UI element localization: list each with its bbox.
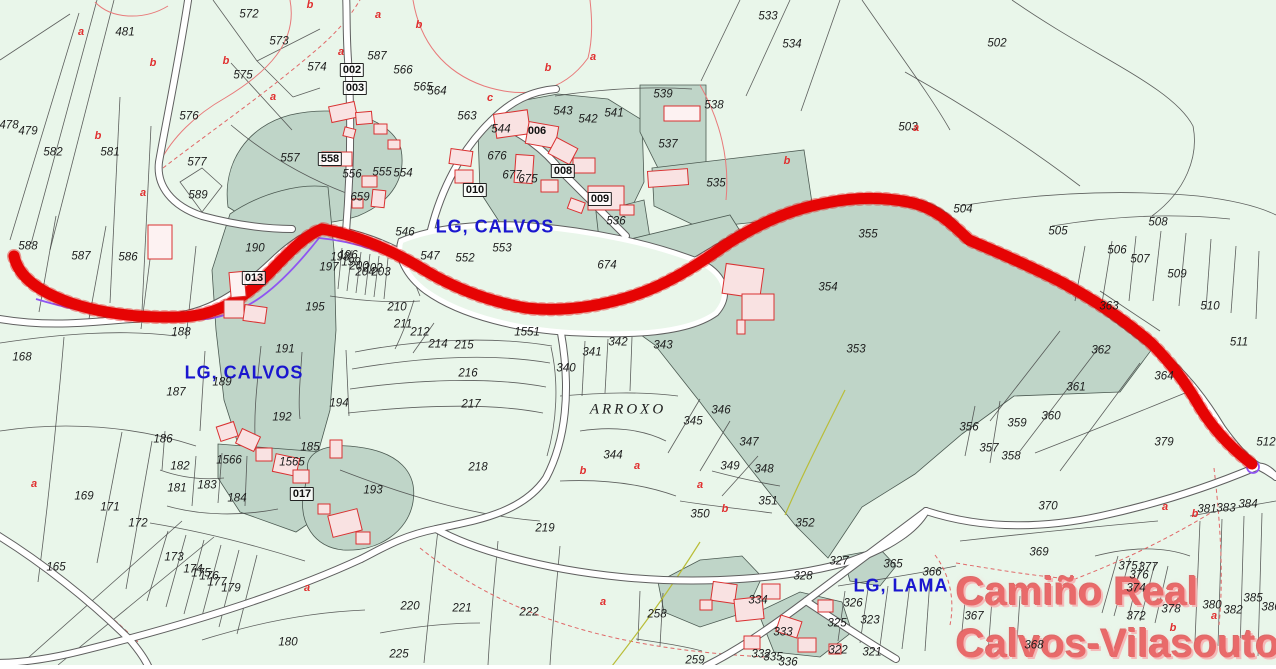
parcel-label: 184 — [227, 493, 246, 505]
map-title-line2: Calvos-Vilasouto — [956, 622, 1276, 667]
parcel-label: 383 — [1216, 503, 1235, 515]
subparcel-letter: c — [487, 92, 493, 104]
parcel-label: 553 — [492, 243, 511, 255]
subparcel-letter: b — [784, 155, 791, 167]
parcel-label: 362 — [1091, 345, 1110, 357]
subparcel-letter: b — [1170, 622, 1177, 634]
parcel-label: 215 — [454, 340, 473, 352]
parcel-label: 544 — [491, 124, 510, 136]
parcel-label: 340 — [556, 363, 575, 375]
parcel-label: 384 — [1238, 499, 1257, 511]
parcel-label: 541 — [604, 108, 623, 120]
parcel-label: 336 — [778, 657, 797, 669]
subparcel-letter: a — [304, 582, 310, 594]
parcel-label: 363 — [1099, 301, 1118, 313]
parcel-label: 180 — [278, 637, 297, 649]
parcel-label: 344 — [603, 450, 622, 462]
parcel-label: 589 — [188, 190, 207, 202]
building-label: 017 — [290, 487, 314, 501]
parcel-label: 574 — [307, 62, 326, 74]
parcel-label: 535 — [706, 178, 725, 190]
parcel-label: 219 — [535, 523, 554, 535]
parcel-label: 478 — [0, 120, 19, 132]
parcel-label: 372 — [1126, 611, 1145, 623]
parcel-label: 356 — [959, 422, 978, 434]
parcel-label: 365 — [883, 559, 902, 571]
parcel-label: 552 — [455, 253, 474, 265]
parcel-label: 504 — [953, 204, 972, 216]
parcel-label: 192 — [272, 412, 291, 424]
parcel-label: 374 — [1126, 583, 1145, 595]
parcel-label: 539 — [653, 89, 672, 101]
parcel-label: 367 — [964, 611, 983, 623]
parcel-label: 512 — [1256, 437, 1275, 449]
subparcel-letter: a — [270, 91, 276, 103]
parcel-label: 214 — [428, 339, 447, 351]
parcel-label: 572 — [239, 9, 258, 21]
place-label-lg-calvos-1: LG, CALVOS — [436, 217, 555, 238]
building-label: 008 — [551, 164, 575, 178]
parcel-label: 505 — [1048, 226, 1067, 238]
parcel-label: 189 — [212, 377, 231, 389]
parcel-label: 536 — [606, 216, 625, 228]
parcel-label: 321 — [862, 647, 881, 659]
parcel-label: 326 — [843, 598, 862, 610]
parcel-label: 343 — [653, 340, 672, 352]
parcel-label: 221 — [452, 603, 471, 615]
parcel-label: 555 — [372, 167, 391, 179]
subparcel-letter: b — [545, 62, 552, 74]
parcel-label: 348 — [754, 464, 773, 476]
parcel-label: 203 — [371, 267, 390, 279]
parcel-label: 323 — [860, 615, 879, 627]
parcel-label: 217 — [461, 399, 480, 411]
parcel-label: 349 — [720, 461, 739, 473]
subparcel-letter: a — [31, 478, 37, 490]
parcel-label: 674 — [597, 260, 616, 272]
parcel-label: 676 — [487, 151, 506, 163]
cadastral-map[interactable]: LG, CALVOS LG, CALVOS LG, LAMA ARROXO Ca… — [0, 0, 1276, 665]
parcel-label: 220 — [400, 601, 419, 613]
parcel-label: 675 — [518, 174, 537, 186]
parcel-label: 381 — [1197, 504, 1216, 516]
parcel-label: 575 — [233, 70, 252, 82]
parcel-label: 345 — [683, 416, 702, 428]
labels-layer: LG, CALVOS LG, CALVOS LG, LAMA ARROXO Ca… — [0, 0, 1276, 665]
parcel-label: 506 — [1107, 245, 1126, 257]
subparcel-letter: a — [600, 596, 606, 608]
subparcel-letter: b — [223, 55, 230, 67]
parcel-label: 587 — [71, 251, 90, 263]
parcel-label: 538 — [704, 100, 723, 112]
parcel-label: 481 — [115, 27, 134, 39]
parcel-label: 546 — [395, 227, 414, 239]
parcel-label: 386 — [1261, 602, 1276, 614]
parcel-label: 573 — [269, 36, 288, 48]
building-label: 558 — [318, 152, 342, 166]
parcel-label: 342 — [608, 337, 627, 349]
parcel-label: 1551 — [514, 327, 540, 339]
subparcel-letter: a — [913, 122, 919, 134]
parcel-label: 510 — [1200, 301, 1219, 313]
parcel-label: 171 — [100, 502, 119, 514]
parcel-label: 547 — [420, 251, 439, 263]
area-label-arroxo: ARROXO — [590, 402, 666, 419]
parcel-label: 225 — [389, 649, 408, 661]
parcel-label: 479 — [18, 126, 37, 138]
parcel-label: 197 — [319, 262, 338, 274]
parcel-label: 586 — [118, 252, 137, 264]
subparcel-letter: b — [1192, 508, 1199, 520]
parcel-label: 258 — [647, 609, 666, 621]
parcel-label: 385 — [1243, 593, 1262, 605]
parcel-label: 172 — [128, 518, 147, 530]
parcel-label: 334 — [748, 595, 767, 607]
parcel-label: 194 — [329, 398, 348, 410]
parcel-label: 566 — [393, 65, 412, 77]
subparcel-letter: b — [416, 19, 423, 31]
parcel-label: 173 — [164, 552, 183, 564]
parcel-label: 193 — [363, 485, 382, 497]
parcel-label: 325 — [827, 618, 846, 630]
building-label: 013 — [242, 271, 266, 285]
parcel-label: 169 — [74, 491, 93, 503]
parcel-label: 556 — [342, 169, 361, 181]
parcel-label: 346 — [711, 405, 730, 417]
parcel-label: 341 — [582, 347, 601, 359]
parcel-label: 352 — [795, 518, 814, 530]
parcel-label: 322 — [828, 645, 847, 657]
subparcel-letter: b — [722, 503, 729, 515]
parcel-label: 1566 — [216, 455, 242, 467]
parcel-label: 508 — [1148, 217, 1167, 229]
parcel-label: 369 — [1029, 547, 1048, 559]
building-label: 009 — [588, 192, 612, 206]
parcel-label: 182 — [170, 461, 189, 473]
parcel-label: 212 — [410, 327, 429, 339]
parcel-label: 537 — [658, 139, 677, 151]
parcel-label: 333 — [773, 627, 792, 639]
parcel-label: 659 — [350, 192, 369, 204]
parcel-label: 351 — [758, 496, 777, 508]
parcel-label: 190 — [245, 243, 264, 255]
parcel-label: 357 — [979, 443, 998, 455]
parcel-label: 533 — [758, 11, 777, 23]
parcel-label: 355 — [858, 229, 877, 241]
building-label: 006 — [526, 125, 548, 137]
subparcel-letter: b — [95, 130, 102, 142]
parcel-label: 368 — [1024, 640, 1043, 652]
subparcel-letter: a — [78, 26, 84, 38]
parcel-label: 350 — [690, 509, 709, 521]
parcel-label: 543 — [553, 106, 572, 118]
parcel-label: 360 — [1041, 411, 1060, 423]
parcel-label: 259 — [685, 655, 704, 667]
parcel-label: 379 — [1154, 437, 1173, 449]
parcel-label: 359 — [1007, 418, 1026, 430]
parcel-label: 587 — [367, 51, 386, 63]
parcel-label: 376 — [1129, 570, 1148, 582]
subparcel-letter: b — [580, 465, 587, 477]
building-label: 010 — [463, 183, 487, 197]
parcel-label: 542 — [578, 114, 597, 126]
parcel-label: 183 — [197, 480, 216, 492]
parcel-label: 218 — [468, 462, 487, 474]
subparcel-letter: a — [140, 187, 146, 199]
parcel-label: 554 — [393, 168, 412, 180]
subparcel-letter: a — [375, 9, 381, 21]
parcel-label: 576 — [179, 111, 198, 123]
parcel-label: 382 — [1223, 605, 1242, 617]
parcel-label: 588 — [18, 241, 37, 253]
parcel-label: 511 — [1230, 337, 1248, 349]
parcel-label: 179 — [221, 583, 240, 595]
parcel-label: 354 — [818, 282, 837, 294]
parcel-label: 195 — [305, 302, 324, 314]
parcel-label: 378 — [1161, 604, 1180, 616]
parcel-label: 328 — [793, 571, 812, 583]
parcel-label: 222 — [519, 607, 538, 619]
parcel-label: 210 — [387, 302, 406, 314]
parcel-label: 327 — [829, 556, 848, 568]
parcel-label: 181 — [167, 483, 186, 495]
subparcel-letter: a — [634, 460, 640, 472]
parcel-label: 557 — [280, 153, 299, 165]
subparcel-letter: b — [150, 57, 157, 69]
parcel-label: 353 — [846, 344, 865, 356]
parcel-label: 358 — [1001, 451, 1020, 463]
parcel-label: 534 — [782, 39, 801, 51]
parcel-label: 186 — [153, 434, 172, 446]
parcel-label: 577 — [187, 157, 206, 169]
building-label: 002 — [340, 63, 364, 77]
subparcel-letter: a — [697, 479, 703, 491]
parcel-label: 168 — [12, 352, 31, 364]
parcel-label: 347 — [739, 437, 758, 449]
parcel-label: 361 — [1066, 382, 1085, 394]
parcel-label: 564 — [427, 86, 446, 98]
parcel-label: 188 — [171, 327, 190, 339]
parcel-label: 1565 — [279, 457, 305, 469]
parcel-label: 187 — [166, 387, 185, 399]
parcel-label: 216 — [458, 368, 477, 380]
parcel-label: 211 — [394, 319, 412, 331]
parcel-label: 364 — [1154, 371, 1173, 383]
parcel-label: 370 — [1038, 501, 1057, 513]
parcel-label: 581 — [100, 147, 119, 159]
building-label: 003 — [343, 81, 367, 95]
subparcel-letter: a — [590, 51, 596, 63]
subparcel-letter: a — [1162, 501, 1168, 513]
place-label-lg-calvos-2: LG, CALVOS — [185, 363, 304, 384]
subparcel-letter: b — [307, 0, 314, 11]
subparcel-letter: a — [338, 46, 344, 58]
parcel-label: 165 — [46, 562, 65, 574]
parcel-label: 502 — [987, 38, 1006, 50]
parcel-label: 509 — [1167, 269, 1186, 281]
parcel-label: 563 — [457, 111, 476, 123]
parcel-label: 191 — [275, 344, 294, 356]
parcel-label: 582 — [43, 147, 62, 159]
subparcel-letter: a — [1211, 610, 1217, 622]
parcel-label: 366 — [922, 567, 941, 579]
parcel-label: 185 — [300, 442, 319, 454]
parcel-label: 507 — [1130, 254, 1149, 266]
